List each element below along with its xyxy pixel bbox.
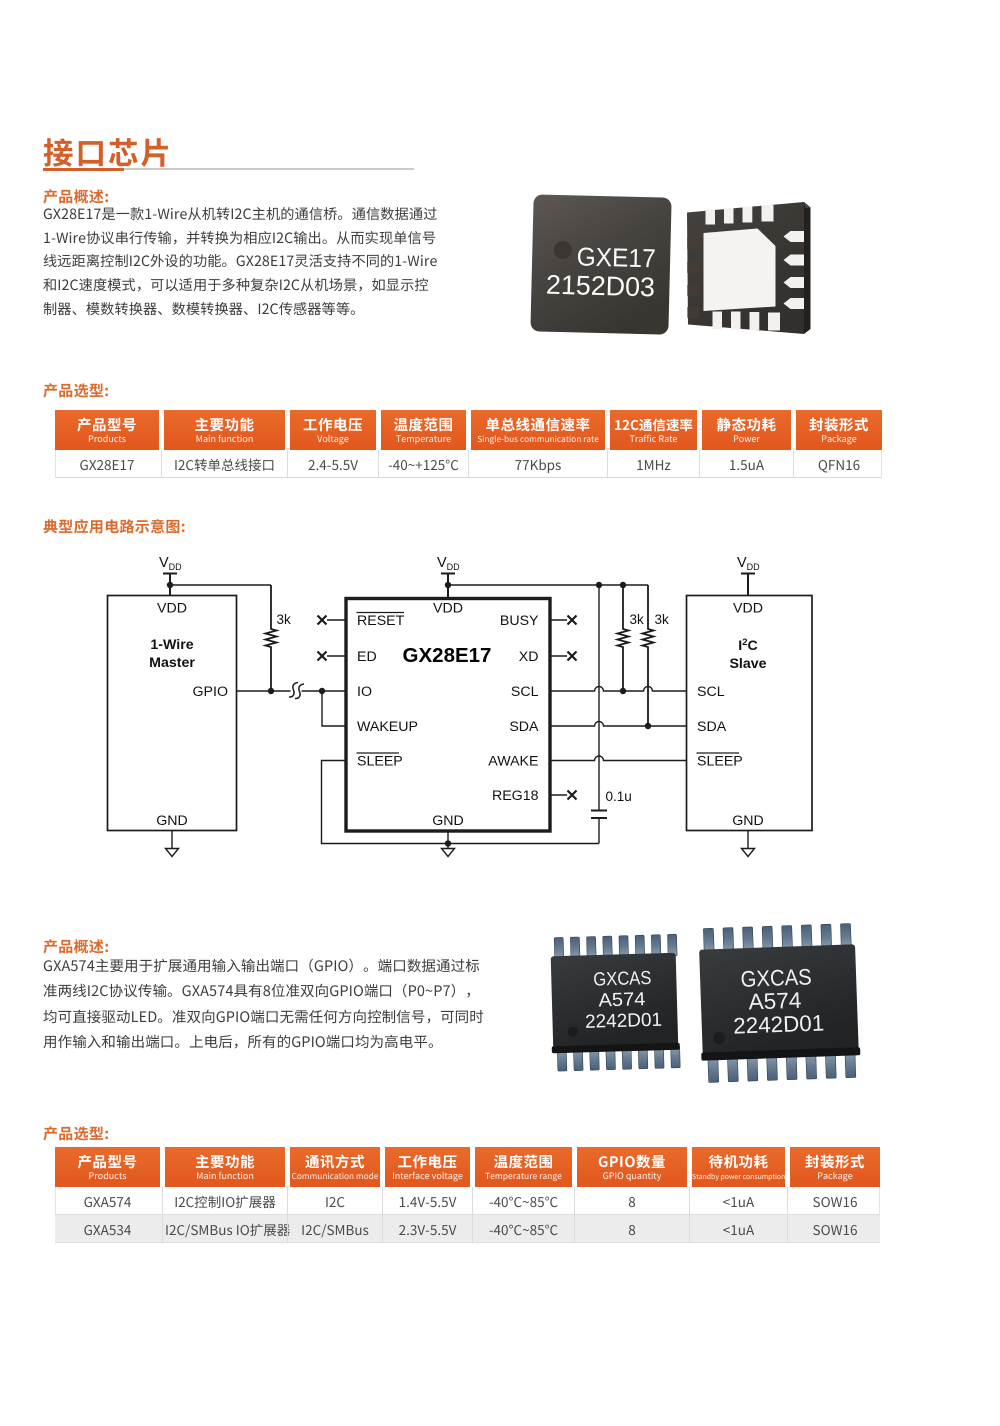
svg-text:0.1u: 0.1u (606, 789, 632, 804)
svg-text:IO: IO (357, 684, 372, 700)
svg-text:SDA: SDA (697, 719, 727, 735)
svg-text:GXCAS: GXCAS (593, 968, 652, 991)
svg-text:VDD: VDD (437, 555, 460, 572)
svg-text:REG18: REG18 (492, 788, 539, 804)
svg-text:A574: A574 (598, 989, 646, 1011)
svg-text:SLEEP: SLEEP (357, 754, 403, 770)
svg-text:BUSY: BUSY (500, 613, 539, 629)
svg-text:WAKEUP: WAKEUP (357, 719, 418, 735)
svg-text:SCL: SCL (511, 684, 539, 700)
svg-text:Master: Master (149, 655, 195, 671)
svg-text:VDD: VDD (433, 601, 463, 617)
svg-text:RESET: RESET (357, 613, 405, 629)
svg-text:1-Wire: 1-Wire (150, 637, 193, 653)
svg-text:GND: GND (732, 813, 764, 829)
svg-text:XD: XD (519, 649, 539, 665)
svg-text:AWAKE: AWAKE (488, 754, 538, 770)
svg-text:VDD: VDD (159, 555, 182, 572)
svg-text:ED: ED (357, 649, 377, 665)
svg-text:3k: 3k (630, 612, 645, 627)
svg-text:2242D01: 2242D01 (733, 1010, 825, 1038)
svg-text:SLEEP: SLEEP (697, 754, 743, 770)
svg-text:3k: 3k (655, 612, 670, 627)
svg-text:VDD: VDD (737, 555, 760, 572)
svg-text:VDD: VDD (157, 601, 187, 617)
svg-text:GND: GND (432, 813, 464, 829)
svg-text:Slave: Slave (729, 656, 766, 672)
svg-text:GXE17: GXE17 (576, 241, 656, 273)
svg-text:VDD: VDD (733, 601, 763, 617)
svg-text:SCL: SCL (697, 684, 725, 700)
svg-text:2152D03: 2152D03 (546, 270, 656, 303)
svg-text:3k: 3k (277, 612, 292, 627)
svg-text:2242D01: 2242D01 (585, 1010, 663, 1033)
svg-text:GPIO: GPIO (193, 684, 228, 700)
svg-text:SDA: SDA (509, 719, 539, 735)
svg-text:GND: GND (156, 813, 188, 829)
svg-text:GX28E17: GX28E17 (403, 644, 492, 667)
svg-text:I2C: I2C (738, 637, 758, 654)
